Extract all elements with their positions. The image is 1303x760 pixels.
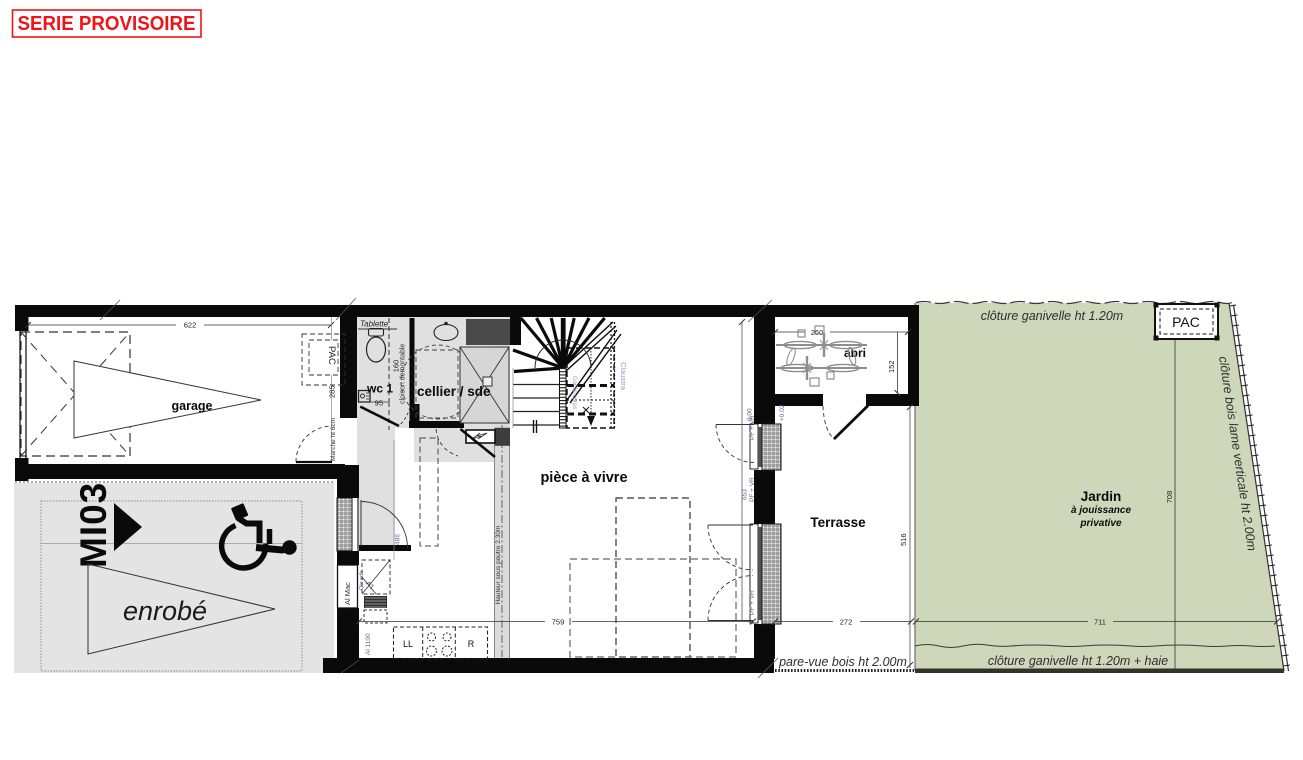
svg-text:152: 152 bbox=[887, 360, 896, 373]
svg-text:privative: privative bbox=[1079, 518, 1122, 529]
svg-text:260: 260 bbox=[811, 328, 824, 337]
svg-text:MI03: MI03 bbox=[73, 482, 114, 568]
svg-text:garage: garage bbox=[172, 399, 213, 413]
svg-text:622: 622 bbox=[184, 321, 197, 330]
svg-text:clôture ganivelle ht 1.20m: clôture ganivelle ht 1.20m bbox=[981, 309, 1123, 323]
svg-text:Claustra: Claustra bbox=[619, 362, 628, 391]
svg-text:0.00: 0.00 bbox=[747, 408, 754, 421]
svg-text:Marche ht 6cm: Marche ht 6cm bbox=[330, 418, 337, 461]
svg-text:à jouissance: à jouissance bbox=[1071, 505, 1131, 516]
svg-text:95: 95 bbox=[375, 399, 383, 408]
svg-text:enrobé: enrobé bbox=[123, 596, 207, 626]
svg-text:516: 516 bbox=[899, 533, 908, 546]
svg-text:PF + VR: PF + VR bbox=[749, 477, 756, 502]
svg-text:Hauteur sous poutre 2.30m: Hauteur sous poutre 2.30m bbox=[495, 526, 502, 605]
svg-text:+0.02: +0.02 bbox=[779, 404, 786, 421]
svg-text:pièce à vivre: pièce à vivre bbox=[540, 470, 627, 486]
svg-text:285: 285 bbox=[328, 385, 337, 398]
svg-text:272: 272 bbox=[840, 618, 853, 627]
svg-text:cloison demontable: cloison demontable bbox=[400, 344, 407, 404]
svg-text:711: 711 bbox=[1094, 618, 1106, 627]
svg-text:Garde-corps: Garde-corps bbox=[571, 376, 577, 409]
svg-text:PF + VR: PF + VR bbox=[749, 590, 756, 615]
svg-text:653: 653 bbox=[742, 489, 749, 500]
svg-text:759: 759 bbox=[552, 618, 565, 627]
svg-text:LL: LL bbox=[403, 639, 413, 649]
svg-text:Qte sdb: Qte sdb bbox=[359, 571, 365, 590]
svg-text:Al 1100: Al 1100 bbox=[365, 633, 372, 655]
svg-text:PAC: PAC bbox=[326, 346, 337, 365]
svg-text:Al Mac: Al Mac bbox=[343, 582, 352, 605]
svg-text:pare-vue bois ht 2.00m: pare-vue bois ht 2.00m bbox=[778, 655, 907, 669]
svg-text:Terrasse: Terrasse bbox=[810, 515, 866, 530]
svg-text:PAC: PAC bbox=[1172, 314, 1200, 330]
svg-text:708: 708 bbox=[1165, 491, 1174, 504]
svg-text:SERIE PROVISOIRE: SERIE PROVISOIRE bbox=[18, 12, 196, 35]
svg-text:486: 486 bbox=[395, 534, 402, 545]
svg-text:R: R bbox=[468, 639, 475, 649]
svg-text:Jardin: Jardin bbox=[1081, 489, 1122, 504]
svg-text:cellier / sde: cellier / sde bbox=[417, 384, 491, 399]
svg-text:clôture ganivelle ht 1.20m + h: clôture ganivelle ht 1.20m + haie bbox=[988, 654, 1168, 668]
svg-text:Tablette: Tablette bbox=[360, 320, 389, 329]
